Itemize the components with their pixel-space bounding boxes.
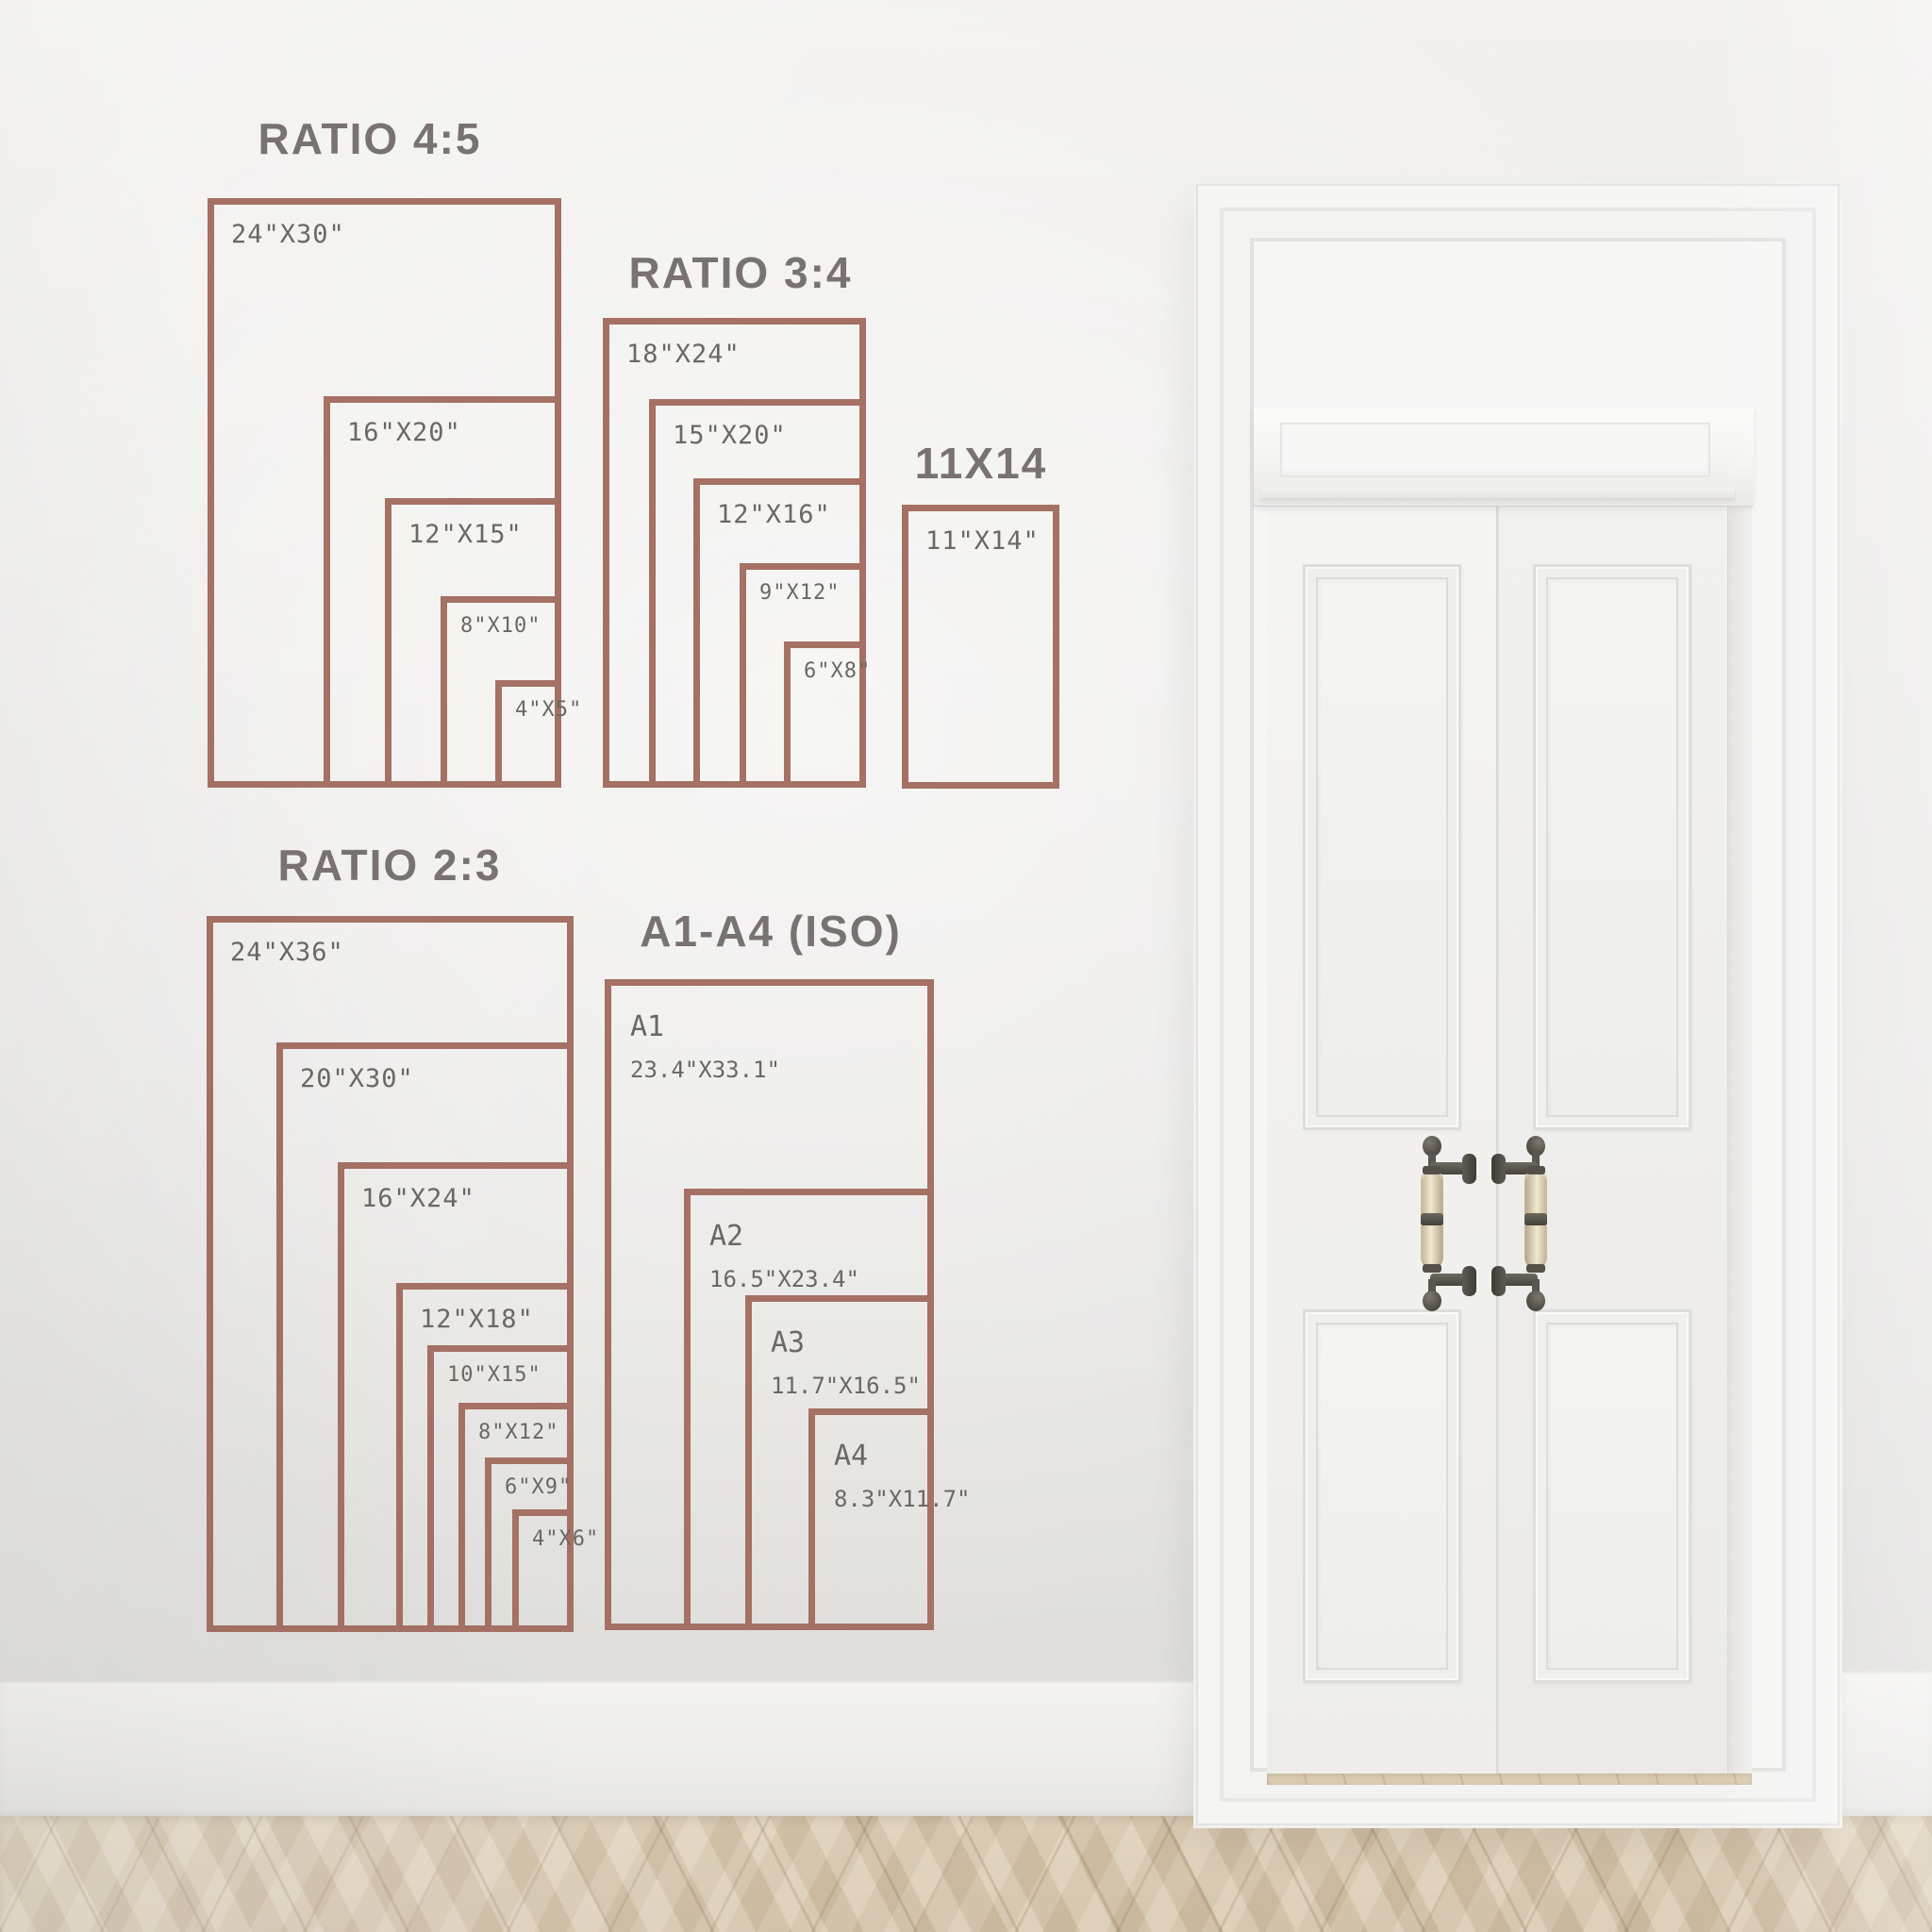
handle-knob-icon [1423, 1291, 1441, 1311]
door-cornice [1254, 408, 1754, 506]
doorway [1193, 181, 1842, 1828]
handle-plate [1491, 1266, 1506, 1296]
size-label-9x12: 9"X12" [759, 581, 840, 605]
size-label-4x5: 4"X5" [515, 698, 582, 722]
size-label-16x20: 16"X20" [347, 418, 461, 447]
handle-knob-icon [1526, 1291, 1545, 1311]
iso-name-a4: A4 [834, 1440, 971, 1473]
size-label-8x10: 8"X10" [460, 614, 541, 638]
size-label-12x16: 12"X16" [717, 500, 831, 529]
size-label-12x15: 12"X15" [408, 520, 523, 549]
wood-floor [0, 1816, 1932, 1932]
size-label-16x24: 16"X24" [361, 1184, 475, 1213]
size-label-8x12: 8"X12" [478, 1421, 558, 1444]
door-panel-lower-left [1303, 1309, 1461, 1683]
door-handle-right [1491, 1136, 1547, 1317]
handle-ferrule [1526, 1166, 1545, 1174]
iso-name-a2: A2 [709, 1220, 859, 1253]
iso-name-a1: A1 [630, 1010, 780, 1043]
size-box-4x6: 4"X6" [512, 1509, 574, 1632]
iso-dims-a4: 8.3"X11.7" [834, 1486, 971, 1512]
group-title-ratio-2-3: RATIO 2:3 [278, 840, 502, 891]
handle-ferrule [1423, 1166, 1441, 1174]
handle-ferrule [1526, 1264, 1545, 1273]
baseboard-right [1842, 1670, 1932, 1818]
print-size-guide-scene: RATIO 4:5 24"X30" 16"X20" 12"X15" 8"X10"… [0, 0, 1932, 1932]
size-label-18x24: 18"X24" [626, 340, 741, 369]
handle-ferrule [1423, 1264, 1441, 1273]
size-label-a4: A4 8.3"X11.7" [834, 1440, 971, 1512]
door-panel-upper-right [1533, 564, 1691, 1130]
iso-name-a3: A3 [771, 1326, 921, 1359]
size-box-11x14: 11"X14" [902, 505, 1059, 789]
handle-plate [1462, 1154, 1476, 1184]
size-box-6x8: 6"X8" [784, 641, 866, 788]
iso-dims-a1: 23.4"X33.1" [630, 1057, 780, 1083]
door-jamb-reveal [1727, 413, 1752, 1785]
iso-dims-a2: 16.5"X23.4" [709, 1266, 859, 1292]
doorway-floor [1267, 1774, 1752, 1785]
size-label-24x30: 24"X30" [231, 220, 345, 249]
size-label-20x30: 20"X30" [300, 1064, 414, 1093]
size-box-a4: A4 8.3"X11.7" [808, 1408, 934, 1630]
group-title-ratio-3-4: RATIO 3:4 [629, 247, 853, 298]
group-title-11x14: 11X14 [915, 438, 1047, 489]
size-label-10x15: 10"X15" [447, 1363, 541, 1387]
size-label-24x36: 24"X36" [230, 938, 344, 967]
baseboard-left [0, 1679, 1193, 1818]
size-label-6x8: 6"X8" [804, 659, 871, 683]
size-label-6x9: 6"X9" [505, 1475, 572, 1499]
group-title-a1-a4-iso: A1-A4 (ISO) [640, 906, 902, 957]
size-label-12x18: 12"X18" [420, 1305, 534, 1334]
door-handle-left [1421, 1136, 1477, 1317]
handle-collar [1524, 1213, 1547, 1225]
group-title-ratio-4-5: RATIO 4:5 [258, 113, 482, 164]
door-panel-lower-right [1533, 1309, 1691, 1683]
size-label-a3: A3 11.7"X16.5" [771, 1326, 921, 1399]
size-label-a1: A1 23.4"X33.1" [630, 1010, 780, 1083]
size-label-15x20: 15"X20" [673, 421, 787, 450]
iso-dims-a3: 11.7"X16.5" [771, 1373, 921, 1399]
door-panel-upper-left [1303, 564, 1461, 1130]
size-label-a2: A2 16.5"X23.4" [709, 1220, 859, 1292]
door-opening [1267, 413, 1752, 1785]
size-label-4x6: 4"X6" [532, 1527, 599, 1551]
handle-collar [1421, 1213, 1443, 1225]
size-label-11x14: 11"X14" [925, 526, 1040, 556]
handle-plate [1491, 1154, 1506, 1184]
size-box-4x5: 4"X5" [495, 680, 561, 788]
handle-plate [1462, 1266, 1476, 1296]
